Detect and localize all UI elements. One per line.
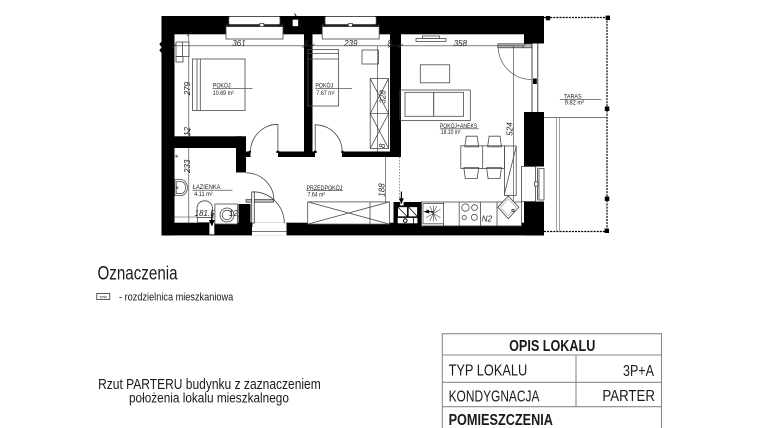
svg-text:PARTER: PARTER bbox=[602, 388, 655, 405]
svg-text:8: 8 bbox=[304, 39, 309, 48]
svg-text:TPR: TPR bbox=[99, 295, 107, 300]
svg-text:KONDYGNACJA: KONDYGNACJA bbox=[449, 388, 541, 405]
svg-text:OPIS LOKALU: OPIS LOKALU bbox=[509, 337, 595, 354]
svg-text:188: 188 bbox=[377, 183, 386, 197]
svg-text:181.5: 181.5 bbox=[195, 209, 216, 218]
svg-text:358: 358 bbox=[454, 39, 468, 48]
svg-text:12: 12 bbox=[229, 209, 238, 218]
svg-text:233: 233 bbox=[183, 159, 192, 174]
svg-text:- rozdzielnica mieszkaniowa: - rozdzielnica mieszkaniowa bbox=[119, 292, 234, 304]
svg-text:7.64 m²: 7.64 m² bbox=[308, 192, 325, 198]
svg-text:239: 239 bbox=[343, 39, 358, 48]
svg-text:279: 279 bbox=[183, 81, 192, 96]
svg-text:położenia lokalu mieszkalnego: położenia lokalu mieszkalnego bbox=[129, 391, 289, 406]
svg-text:POMIESZCZENIA: POMIESZCZENIA bbox=[449, 411, 553, 428]
svg-text:N2: N2 bbox=[482, 215, 493, 224]
svg-text:10.69 m²: 10.69 m² bbox=[213, 91, 234, 97]
svg-text:✳: ✳ bbox=[175, 154, 179, 160]
svg-text:18.10 m²: 18.10 m² bbox=[441, 130, 461, 137]
svg-text:7.67 m²: 7.67 m² bbox=[316, 91, 334, 97]
svg-text:3P+A: 3P+A bbox=[623, 362, 655, 380]
svg-text:4.11 m²: 4.11 m² bbox=[194, 192, 213, 198]
svg-text:361: 361 bbox=[232, 39, 245, 48]
svg-text:Oznaczenia: Oznaczenia bbox=[98, 262, 178, 284]
svg-text:524: 524 bbox=[506, 122, 515, 136]
svg-text:12: 12 bbox=[183, 127, 192, 136]
svg-text:9.82 m²: 9.82 m² bbox=[565, 100, 584, 106]
svg-text:TYP LOKALU: TYP LOKALU bbox=[449, 362, 528, 379]
svg-text:8: 8 bbox=[388, 39, 393, 48]
